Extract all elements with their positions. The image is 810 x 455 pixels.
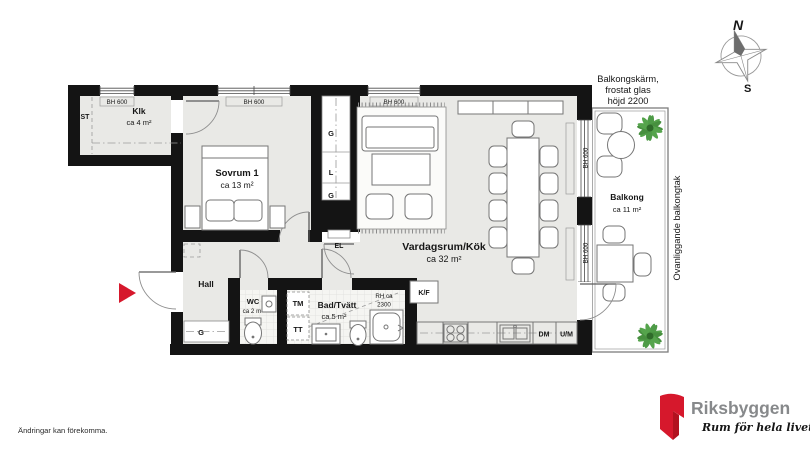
compass-south-label: S	[744, 83, 751, 95]
balcony-chair	[597, 156, 622, 177]
dining-chair	[489, 227, 507, 248]
balcony-chair	[634, 253, 651, 276]
room-label-vardagsrum: Vardagsrum/Kök	[402, 241, 486, 253]
sideboard	[458, 101, 563, 114]
window-sill-label: BH 600	[583, 147, 590, 168]
room-label-wc: WC	[247, 297, 260, 306]
dining-chair	[540, 146, 558, 167]
dining-chair	[540, 173, 558, 194]
brand-name: Riksbyggen	[691, 398, 790, 418]
room-label-bad: Bad/Tvätt	[318, 300, 357, 310]
compass-rose: N S	[709, 17, 773, 95]
dining-chair	[489, 173, 507, 194]
pillow	[234, 200, 262, 221]
balcony-roof-note: Ovanliggande balkongtak	[672, 175, 682, 280]
balcony-square-table	[597, 245, 633, 282]
room-area-vardagsrum: ca 32 m²	[426, 254, 461, 264]
riksbyggen-flag-icon	[660, 394, 684, 440]
window-sill-label: BH 600	[107, 99, 128, 106]
dining-chair	[540, 200, 558, 221]
balcony-round-table	[608, 132, 635, 159]
balcony-screen-note-line3: höjd 2200	[608, 96, 649, 106]
balcony-chair	[603, 284, 625, 301]
armchair	[366, 194, 393, 219]
fridge-freezer-label: K/F	[418, 290, 430, 297]
balcony-screen-note-line2: frostat glas	[605, 85, 651, 95]
washing-machine: TM	[287, 292, 309, 315]
floor-sovrum-doorway	[280, 230, 308, 242]
dryer: TT	[287, 317, 309, 340]
entry-door	[139, 272, 183, 312]
balcony: Balkong ca 11 m²	[592, 108, 668, 353]
entry-arrow-icon	[119, 283, 136, 303]
floor-wc-doorway	[240, 278, 268, 290]
dishwasher-label: DM	[539, 332, 550, 339]
bath-sink-icon	[312, 324, 340, 344]
dining-chair	[512, 121, 534, 137]
dining-table	[507, 138, 539, 257]
shower-icon	[370, 310, 403, 344]
floor-plan-svg: Balkong ca 11 m²	[0, 0, 810, 455]
footer-disclaimer: Ändringar kan förekomma.	[18, 426, 107, 435]
coffee-table	[372, 154, 430, 185]
room-area-klk: ca 4 m²	[126, 118, 152, 127]
el-label: EL	[335, 243, 345, 250]
st-label: ST	[81, 114, 91, 121]
oven-micro-label: U/M	[560, 332, 573, 339]
wc-sink-icon	[262, 296, 276, 312]
ceiling-height-label: RH ca	[375, 293, 393, 300]
riksbyggen-logo: Riksbyggen Rum för hela livet	[660, 394, 810, 440]
nightstand	[270, 206, 285, 228]
compass-north-label: N	[733, 17, 744, 33]
balcony-chair	[597, 113, 622, 134]
floor-plan-page: Balkong ca 11 m²	[0, 0, 810, 455]
floor-bad-doorway	[322, 278, 352, 290]
balcony-chair	[603, 226, 625, 243]
el-cabinet	[328, 230, 350, 238]
room-area-wc: ca 2 m²	[243, 308, 264, 315]
balcony-screen-note-line1: Balkongskärm,	[597, 74, 659, 84]
ceiling-height-value: 2300	[377, 302, 391, 309]
fridge-freezer: K/F	[410, 281, 438, 303]
nightstand	[185, 206, 200, 228]
room-area-balkong: ca 11 m²	[613, 205, 642, 214]
sofa	[362, 116, 438, 151]
room-label-hall: Hall	[198, 279, 214, 289]
pillow	[206, 200, 234, 221]
dining-chair	[489, 146, 507, 167]
wardrobe-label: G	[328, 191, 334, 200]
wardrobe-label: G	[328, 129, 334, 138]
armchair	[405, 194, 432, 219]
window-sill-label: BH 600	[583, 242, 590, 263]
dining-chair	[489, 200, 507, 221]
wardrobe-label: G	[198, 328, 204, 337]
dining-chair	[540, 227, 558, 248]
toilet-icon	[245, 318, 262, 344]
brand-tagline: Rum för hela livet	[701, 421, 810, 434]
dining-chair	[512, 258, 534, 274]
dryer-label: TT	[293, 325, 303, 334]
room-label-balkong: Balkong	[610, 192, 644, 202]
room-area-sovrum1: ca 13 m²	[220, 180, 253, 190]
washer-label: TM	[293, 299, 304, 308]
room-label-sovrum1: Sovrum 1	[215, 168, 259, 179]
room-area-bad: ca 5 m²	[321, 312, 347, 321]
linen-label: L	[329, 168, 334, 177]
hall-wardrobe: G	[184, 321, 229, 342]
bath-toilet-icon	[350, 321, 366, 346]
room-label-klk: Klk	[132, 106, 146, 116]
window-sill-label: BH 600	[244, 99, 265, 106]
